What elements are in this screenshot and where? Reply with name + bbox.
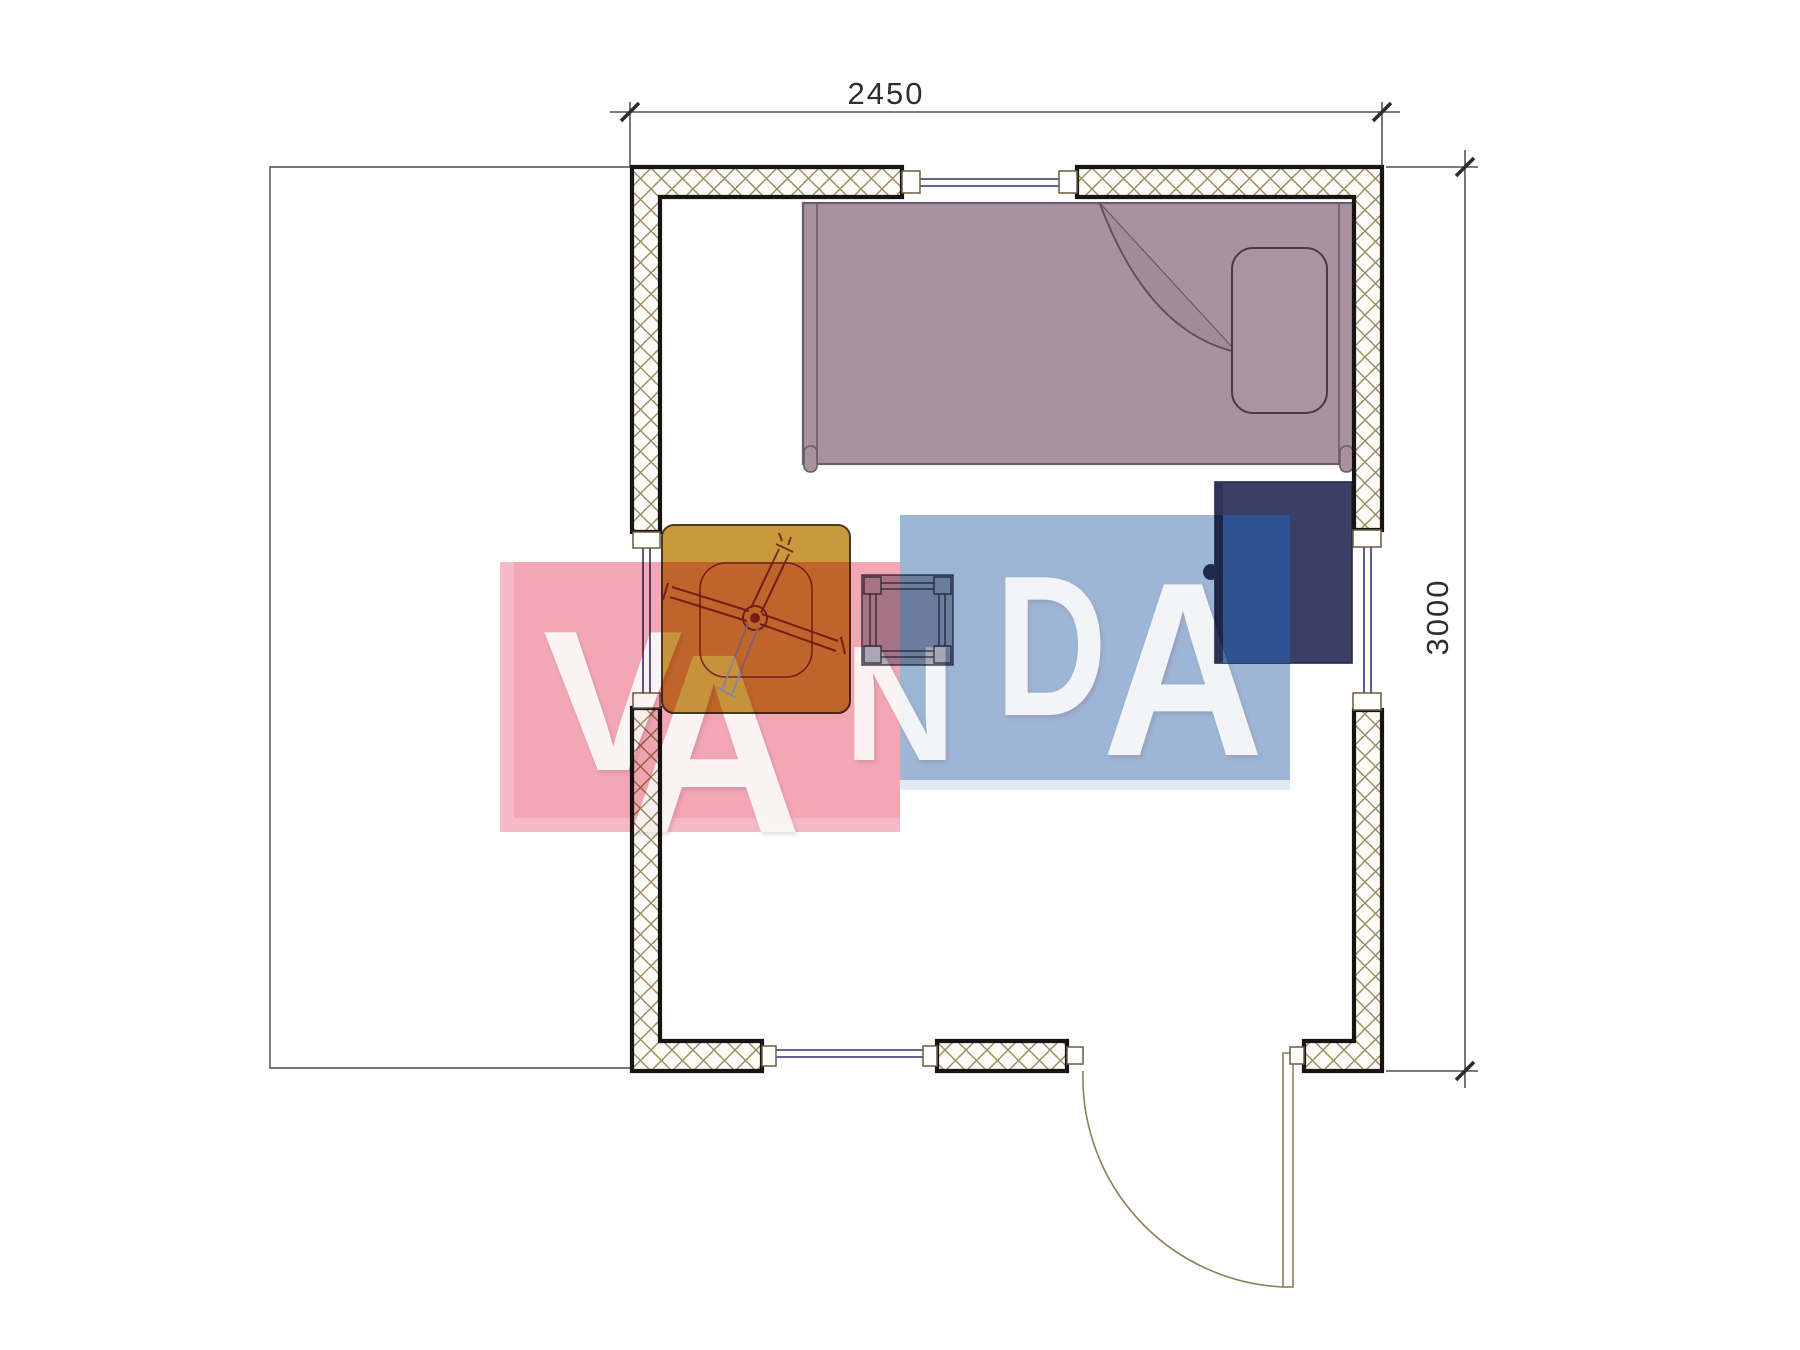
door-swing-arc xyxy=(1083,1071,1283,1287)
terrace-outline xyxy=(270,167,632,1068)
entry-door xyxy=(1067,1047,1304,1287)
stool xyxy=(862,575,953,665)
floor-plan-canvas: V A N D A xyxy=(0,0,1800,1350)
window-jamb xyxy=(1059,171,1077,193)
bed-foot-right xyxy=(1340,446,1353,472)
single-bed xyxy=(803,203,1353,472)
wall-bottom-right xyxy=(1304,710,1382,1071)
window-jamb xyxy=(923,1046,937,1066)
floor-plan-drawing: 2450 3000 xyxy=(0,0,1800,1350)
table-with-ceiling-fan xyxy=(662,525,850,713)
door-leaf xyxy=(1283,1053,1293,1287)
window-jamb xyxy=(762,1046,776,1066)
wall-bottom-left xyxy=(632,708,762,1071)
window-jamb xyxy=(902,171,920,193)
dimension-height-label: 3000 xyxy=(1420,579,1455,656)
window-jamb xyxy=(633,532,660,548)
wardrobe xyxy=(1203,482,1352,663)
door-jamb xyxy=(1067,1047,1083,1064)
window-jamb xyxy=(633,693,660,708)
wardrobe-knob xyxy=(1203,564,1219,580)
window-jamb xyxy=(1353,530,1381,547)
bed-foot-left xyxy=(804,446,817,472)
dimension-width xyxy=(610,102,1400,167)
door-jamb xyxy=(1290,1047,1304,1064)
window-jamb xyxy=(1353,693,1381,710)
dimension-width-label: 2450 xyxy=(848,76,925,111)
wall-bottom-middle xyxy=(937,1041,1067,1071)
wardrobe-door-panel xyxy=(1217,515,1290,663)
pillow xyxy=(1232,248,1327,413)
